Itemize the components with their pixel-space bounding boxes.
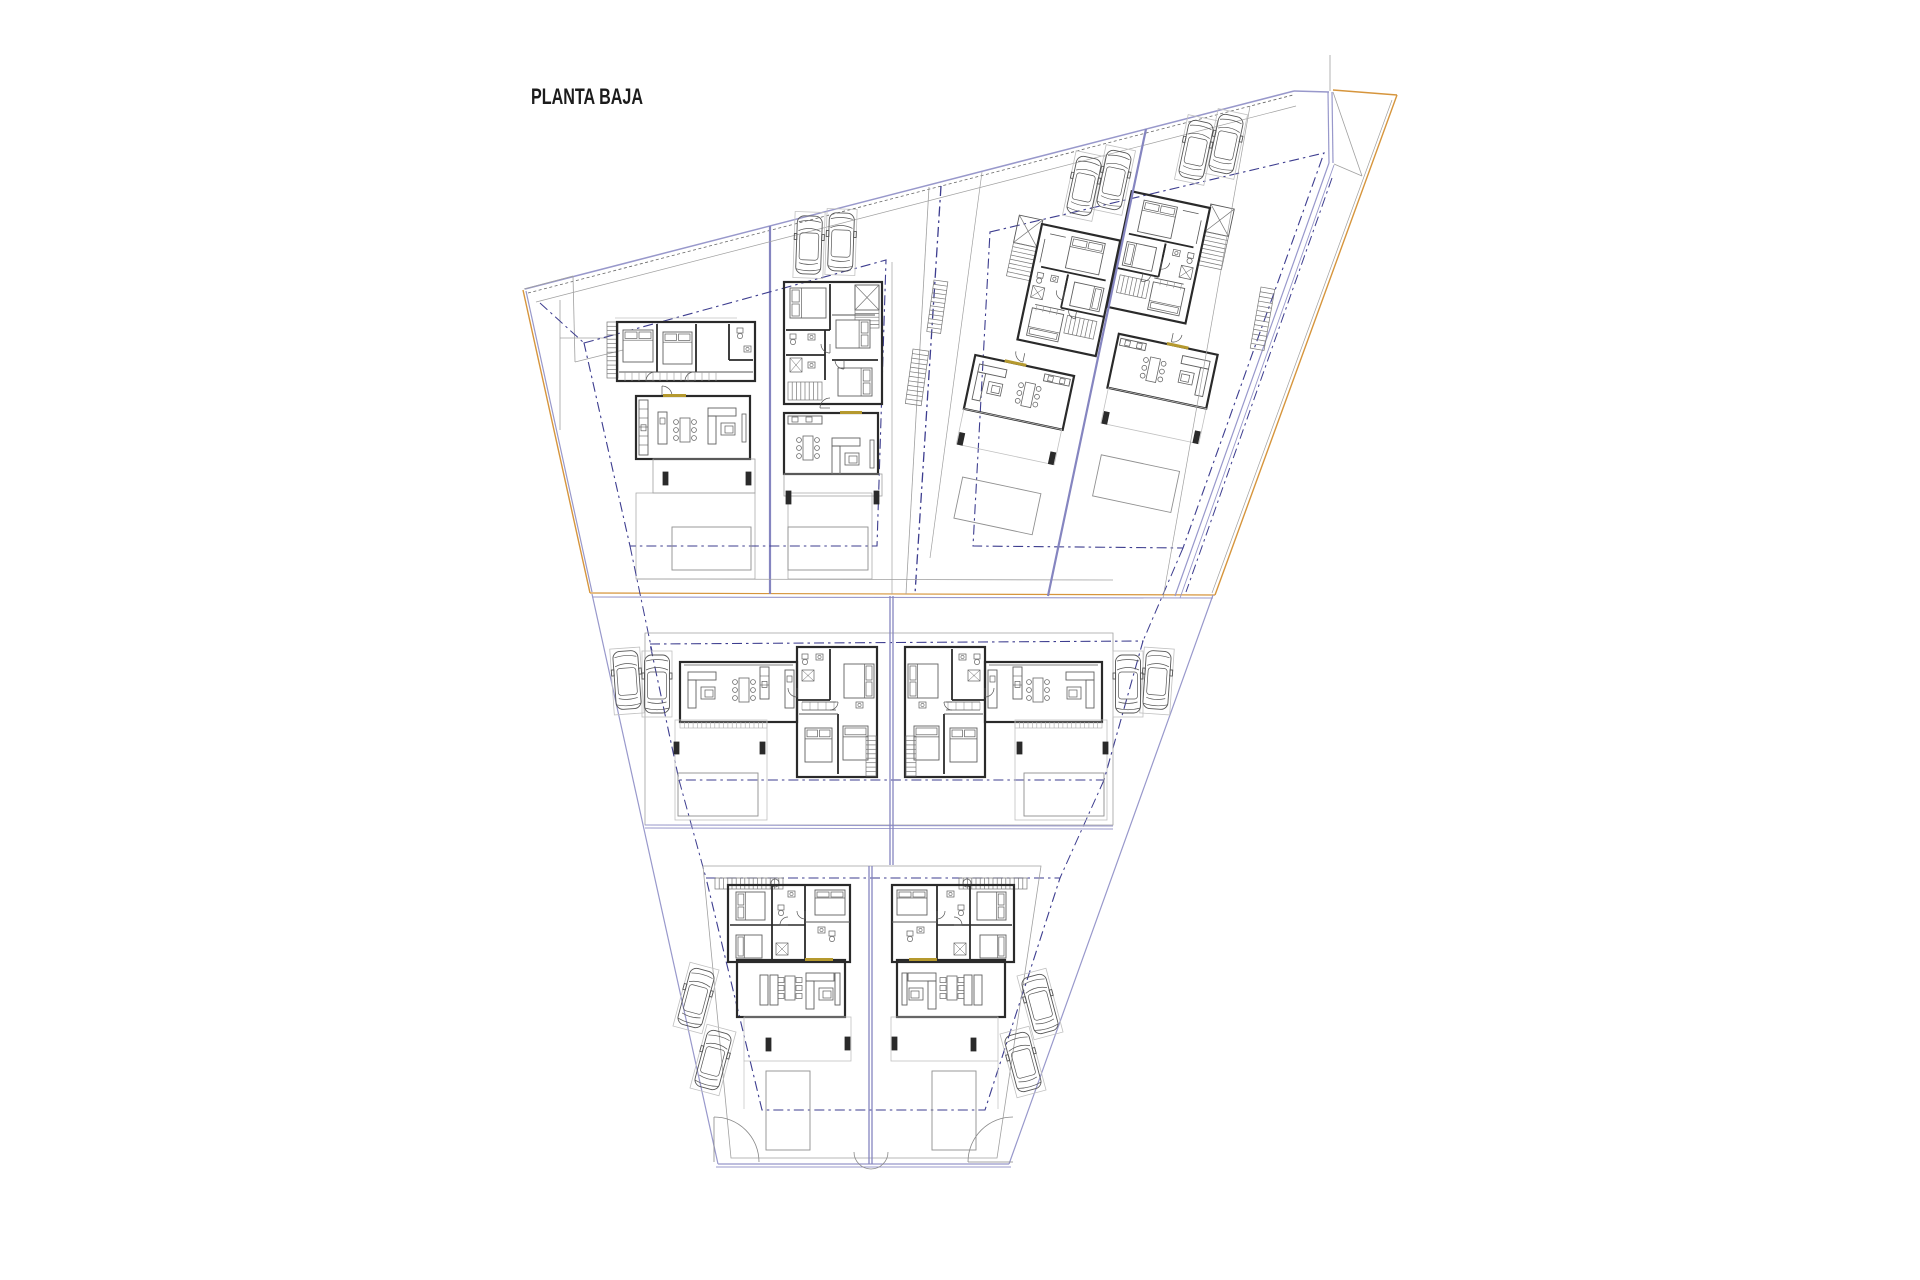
svg-text:PLANTA BAJA: PLANTA BAJA: [531, 84, 643, 109]
